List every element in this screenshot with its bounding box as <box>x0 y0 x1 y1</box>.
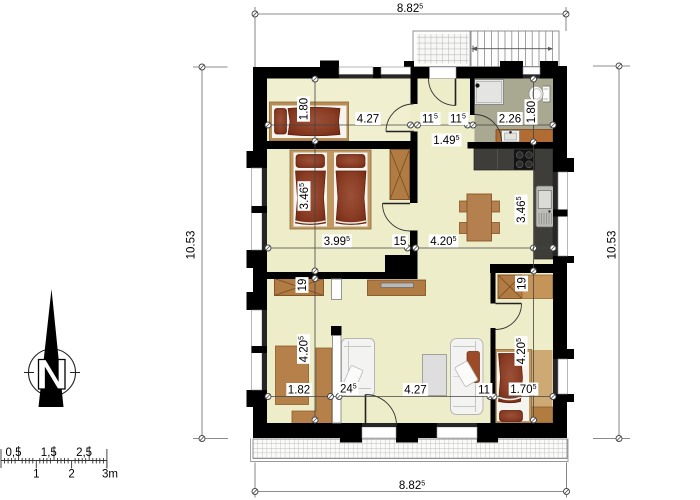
svg-text:2: 2 <box>68 469 74 481</box>
svg-text:2,5: 2,5 <box>76 447 92 459</box>
svg-text:19: 19 <box>517 277 529 290</box>
svg-text:11: 11 <box>478 385 490 397</box>
svg-text:1: 1 <box>33 469 39 481</box>
svg-text:8.825: 8.825 <box>399 480 425 492</box>
svg-text:15: 15 <box>394 236 407 248</box>
svg-text:4.27: 4.27 <box>404 385 426 397</box>
svg-text:3m: 3m <box>102 469 118 481</box>
svg-text:10.53: 10.53 <box>607 231 619 260</box>
svg-text:8.825: 8.825 <box>397 3 423 15</box>
svg-text:1.80: 1.80 <box>299 98 311 120</box>
svg-text:19: 19 <box>297 279 309 292</box>
svg-text:10.53: 10.53 <box>186 231 198 260</box>
svg-text:0,5: 0,5 <box>6 447 22 459</box>
svg-text:1.82: 1.82 <box>288 385 310 397</box>
svg-text:4.27: 4.27 <box>357 114 379 126</box>
svg-text:1,5: 1,5 <box>41 447 57 459</box>
svg-text:1.80: 1.80 <box>526 101 538 123</box>
svg-text:2.26: 2.26 <box>499 114 521 126</box>
